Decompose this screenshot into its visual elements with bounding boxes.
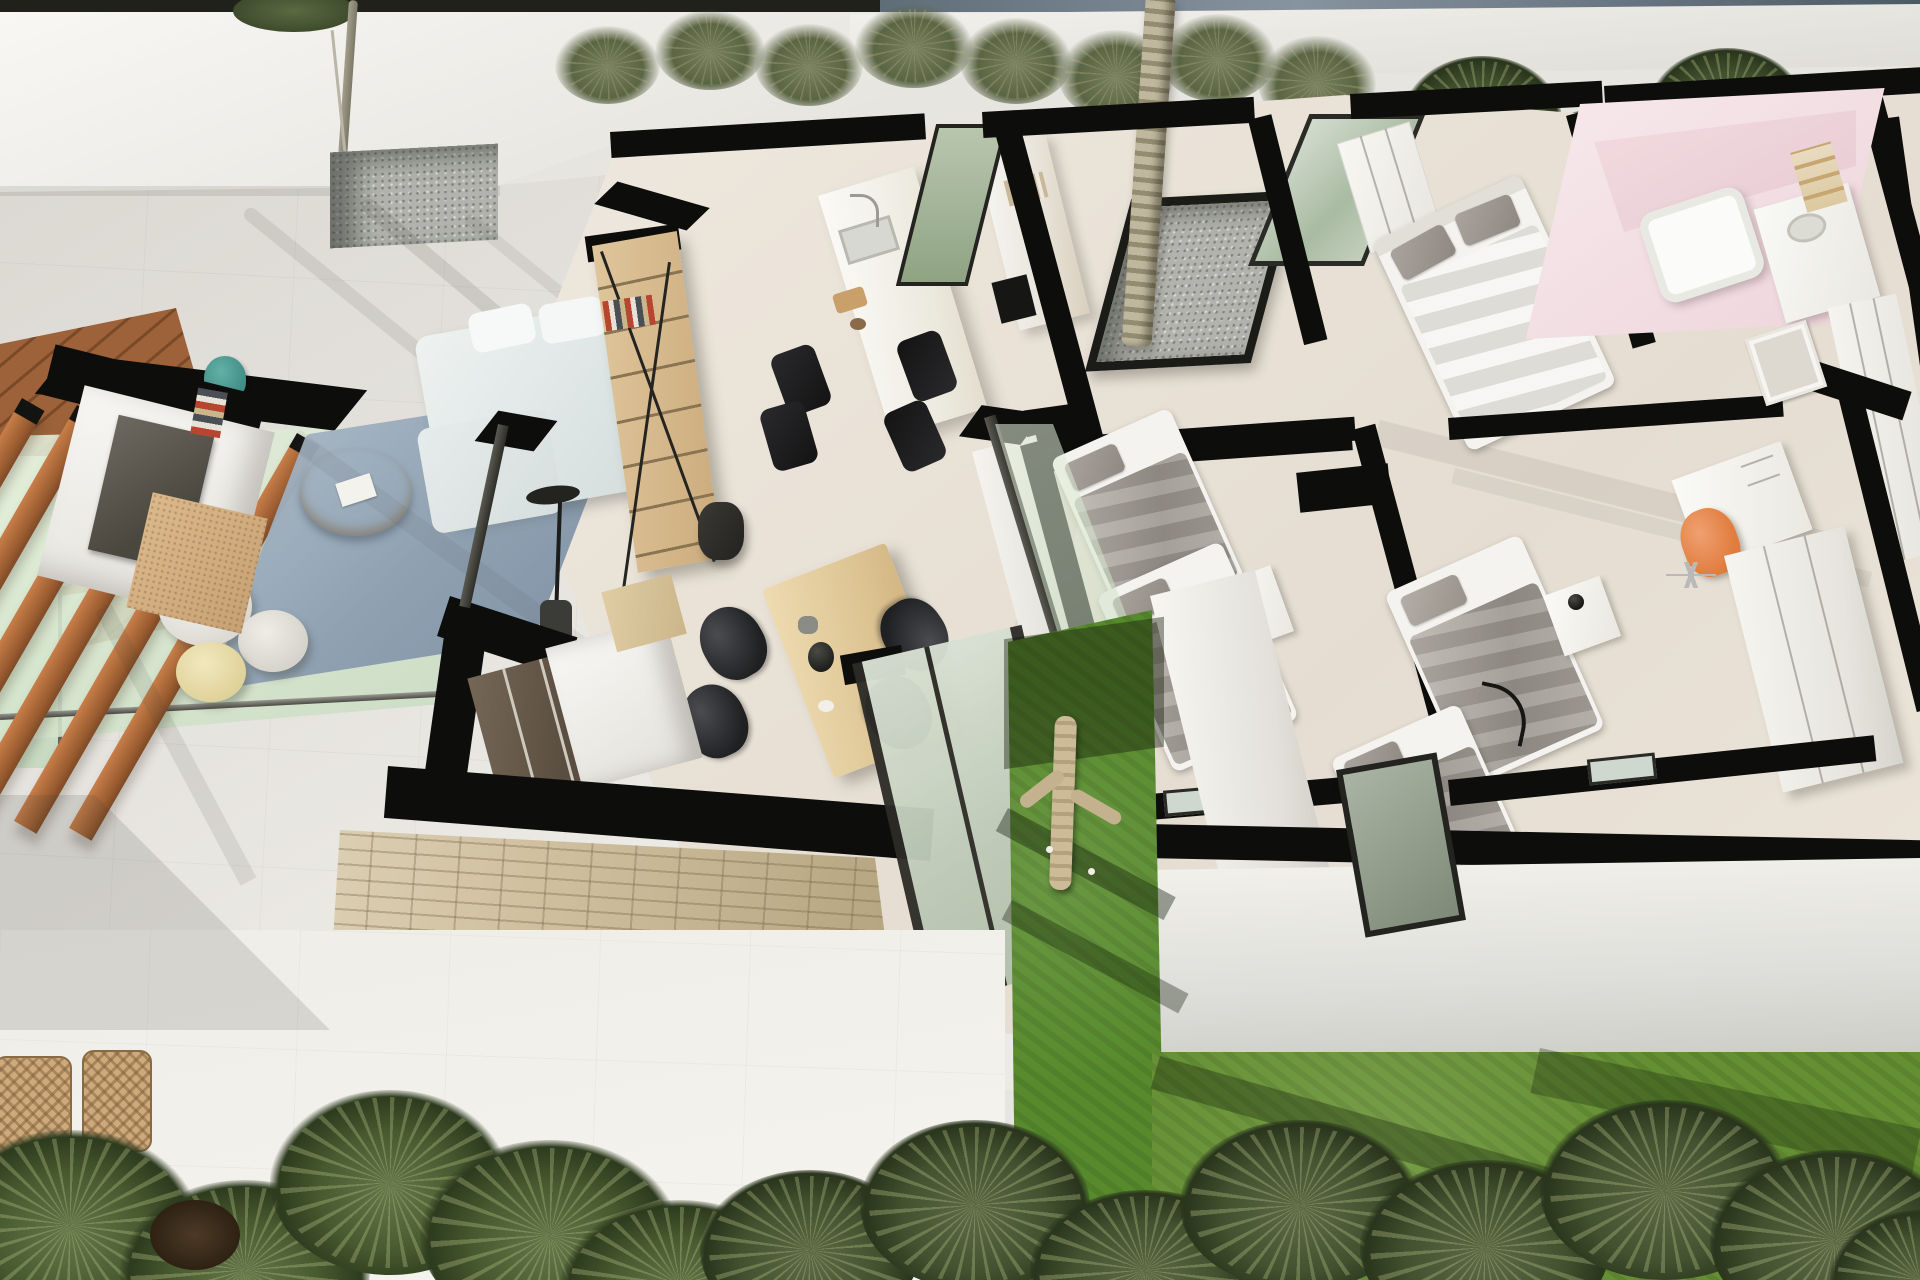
- sphere-table-lamp: [1568, 594, 1584, 610]
- table-bowl: [818, 700, 834, 712]
- counter-bowl: [850, 318, 866, 330]
- hedge-grass: [555, 26, 660, 104]
- chair-star-base: [1666, 562, 1716, 588]
- top-hedge-strip: [0, 0, 880, 14]
- patio-lawn-shadow: [1004, 617, 1164, 769]
- hedge-grass: [960, 18, 1072, 104]
- cylinder-side-table: [698, 502, 744, 560]
- pouf-yellow: [176, 642, 246, 702]
- gravel-pad: [330, 144, 498, 249]
- pinecone-decor: [150, 1200, 240, 1270]
- cactus-bloom: [1088, 868, 1095, 875]
- table-vase: [808, 642, 834, 672]
- hedge-grass: [755, 24, 863, 106]
- table-sculpture: [798, 616, 818, 634]
- south-facade: [1148, 858, 1920, 1076]
- cactus-bloom: [1046, 846, 1053, 853]
- hedge-grass: [855, 4, 973, 88]
- floor-plan-render: [0, 0, 1920, 1280]
- hedge-grass: [655, 10, 765, 90]
- pouf: [238, 610, 308, 672]
